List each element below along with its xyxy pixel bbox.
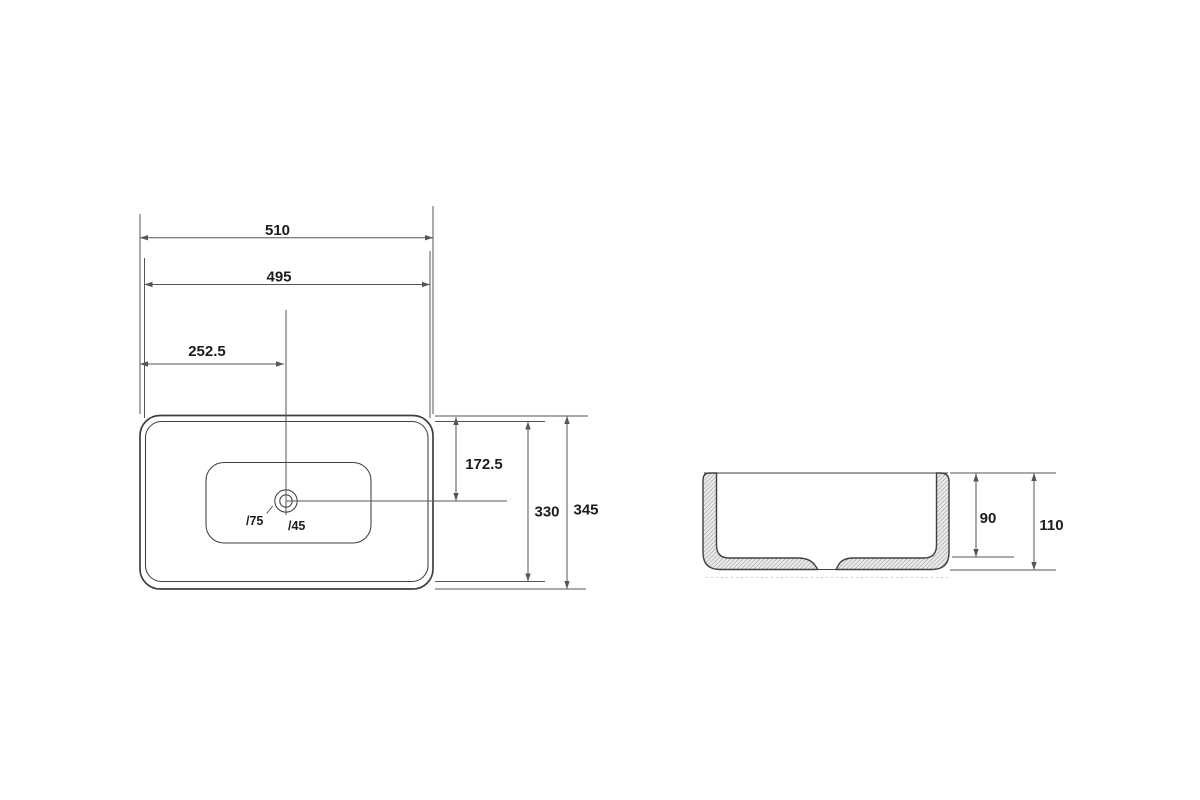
dim-110-label: 110 [1039, 517, 1063, 534]
dim-495-label: 495 [266, 269, 291, 286]
dim-345-label: 345 [573, 502, 598, 519]
dim-330-label: 330 [534, 504, 559, 521]
dim-510-label: 510 [265, 222, 290, 239]
drain-75-leader-line [267, 506, 273, 514]
drain-45-label: /45 [288, 519, 305, 533]
side-view: 90 110 [703, 473, 1064, 578]
side-view-left-wall-section [703, 473, 818, 570]
drain-75-label: /75 [246, 514, 263, 528]
dim-252-5-label: 252.5 [188, 343, 226, 360]
top-view: 510 495 252.5 172.5 330 345 /75 /45 [140, 206, 599, 589]
dim-172-5-label: 172.5 [465, 456, 503, 473]
technical-drawing: 510 495 252.5 172.5 330 345 /75 /45 [0, 0, 1200, 800]
side-view-right-wall-section [836, 473, 949, 570]
dim-90-label: 90 [980, 510, 997, 527]
